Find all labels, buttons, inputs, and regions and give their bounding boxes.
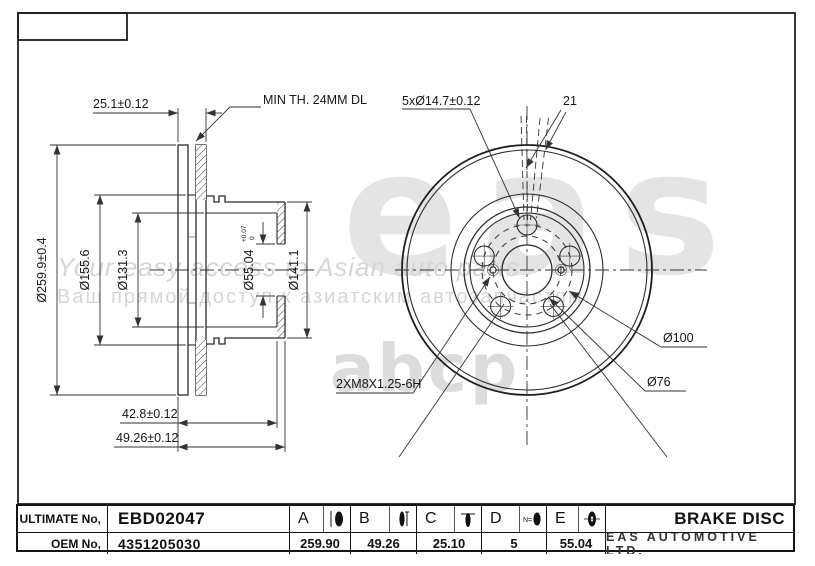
- disc-thickness-icon: [454, 506, 481, 532]
- drawing-sheet: eas abcp Your easy access to Asian auto …: [0, 0, 815, 566]
- col-a-value: 259.90: [289, 532, 350, 554]
- dim-pair-thickness-label: 25.1±0.12: [93, 97, 149, 111]
- col-c-letter: C: [417, 510, 437, 528]
- dim-total-height-label: 49.26±0.12: [116, 431, 179, 445]
- col-d-letter: D: [482, 510, 502, 528]
- dim-bore-tol-upper: +0.07: [241, 225, 248, 242]
- front-view: 5xØ14.7±0.12 21 Ø100 Ø76 2XM8X1.25-6H: [336, 94, 707, 457]
- revision-box: [18, 13, 127, 40]
- title-table: ULTIMATE No, EBD02047 A B C D N=: [16, 504, 795, 552]
- bolt-hole-count-icon: N=: [519, 506, 546, 532]
- dim-bore-label-group: Ø55.04 +0.07 0: [241, 225, 256, 290]
- oem-no-value: 4351205030: [107, 532, 289, 554]
- col-b-value: 49.26: [350, 532, 416, 554]
- col-e-letter: E: [547, 510, 566, 528]
- section-view: 25.1±0.12 MIN TH. 24MM DL Ø259.9±0.4 Ø15…: [35, 93, 367, 452]
- dim-hat-depth-label: 42.8±0.12: [122, 407, 178, 421]
- center-bore-icon: [578, 506, 605, 532]
- disc-height-icon: [389, 506, 416, 532]
- col-d-header: D N=: [481, 506, 546, 532]
- col-e-value: 55.04: [546, 532, 605, 554]
- label-bolt-circle: Ø100: [663, 331, 694, 345]
- ultimate-no-label: ULTIMATE No,: [18, 506, 107, 532]
- company-name: EAS AUTOMOTIVE LTD.: [605, 532, 793, 554]
- dim-hat-inner-diameter-label: Ø131.3: [116, 249, 130, 290]
- label-bolt-holes: 5xØ14.7±0.12: [402, 94, 480, 108]
- ultimate-no-value: EBD02047: [107, 506, 289, 532]
- hole-projection-lines: [521, 116, 549, 220]
- label-offset-21: 21: [563, 94, 577, 108]
- dim-vent-diameter-label: Ø155.6: [78, 249, 92, 290]
- col-c-header: C: [416, 506, 481, 532]
- col-b-letter: B: [351, 510, 370, 528]
- label-thread-spec: 2XM8X1.25-6H: [336, 377, 421, 391]
- dim-min-thickness-label: MIN TH. 24MM DL: [263, 93, 367, 107]
- svg-text:N=: N=: [523, 517, 532, 524]
- label-thread-circle: Ø76: [647, 375, 671, 389]
- dim-bore-label: Ø55.04: [242, 249, 256, 290]
- col-e-header: E: [546, 506, 605, 532]
- disc-outer-diameter-icon: [323, 506, 350, 532]
- dim-outer-diameter-label: Ø259.9±0.4: [35, 237, 49, 302]
- technical-drawing: 25.1±0.12 MIN TH. 24MM DL Ø259.9±0.4 Ø15…: [0, 0, 815, 566]
- dim-hat-diameter-label: Ø141.1: [287, 249, 301, 290]
- oem-no-label: OEM No,: [18, 532, 107, 554]
- dim-bore-tol-lower: 0: [249, 236, 256, 240]
- col-a-header: A: [289, 506, 350, 532]
- col-c-value: 25.10: [416, 532, 481, 554]
- part-title: BRAKE DISC: [605, 506, 793, 532]
- col-d-value: 5: [481, 532, 546, 554]
- col-b-header: B: [350, 506, 416, 532]
- col-a-letter: A: [290, 510, 309, 528]
